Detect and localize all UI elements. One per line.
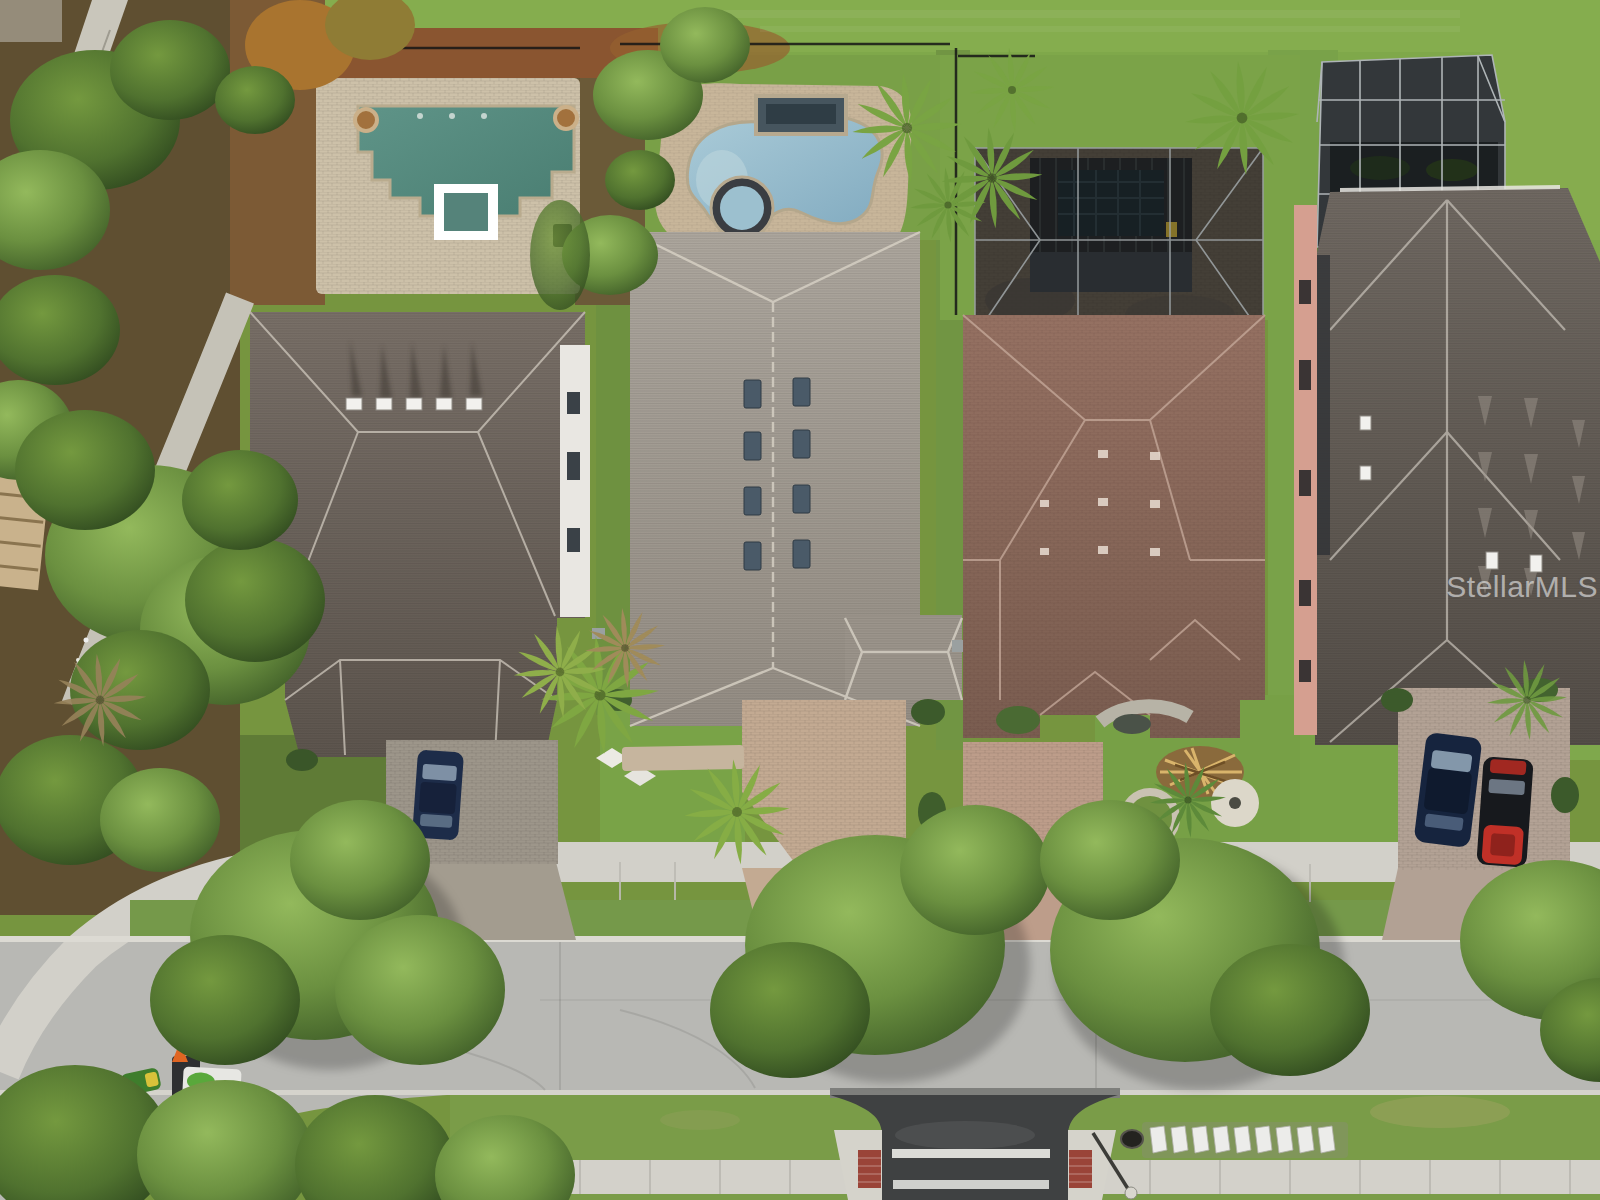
front-walk-2 <box>622 745 744 771</box>
small-pond <box>1113 714 1151 734</box>
guard-panels <box>1121 1122 1348 1158</box>
fountain-bowl-left <box>355 109 377 131</box>
aerial-photo: StellarMLS <box>0 0 1600 1200</box>
crosswalk <box>830 1088 1137 1200</box>
shrub <box>996 706 1040 734</box>
birdbath <box>1229 797 1241 809</box>
shrub <box>286 749 318 771</box>
shrub <box>1551 777 1579 813</box>
shrub <box>911 699 945 725</box>
crosswalk-stripe-2 <box>893 1180 1049 1189</box>
house-1-white-wall <box>560 345 590 617</box>
red-black-sports-car <box>1476 756 1533 867</box>
fountain-bowl-right <box>555 107 577 129</box>
crosswalk-stripe-1 <box>892 1149 1050 1158</box>
shrub <box>1381 688 1413 712</box>
side-screen-wall <box>1317 255 1330 555</box>
sidewalk-bottom-right <box>1087 1160 1600 1194</box>
culvert-pipe <box>1121 1130 1143 1148</box>
house-4 <box>1294 187 1600 745</box>
house-3 <box>963 315 1265 738</box>
street-light-head <box>1125 1187 1137 1199</box>
navy-sedan <box>412 750 464 841</box>
spa-2 <box>716 182 768 234</box>
house-2 <box>630 232 966 726</box>
scene-svg <box>0 0 1600 1200</box>
